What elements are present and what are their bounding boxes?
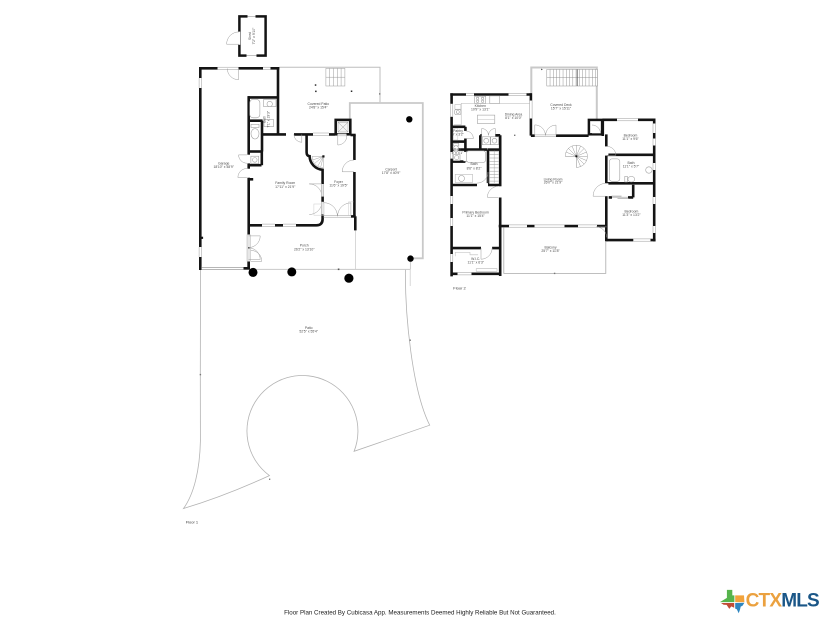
svg-text:9' x 3'2": 9' x 3'2" bbox=[452, 132, 465, 136]
svg-text:8'1" x 10'0": 8'1" x 10'0" bbox=[505, 116, 523, 120]
svg-text:8'6" x 8'2": 8'6" x 8'2" bbox=[467, 166, 483, 170]
svg-text:11'1" x 15'4": 11'1" x 15'4" bbox=[466, 214, 485, 218]
svg-text:25'7" x 11'8": 25'7" x 11'8" bbox=[541, 249, 560, 253]
svg-text:Floor 1: Floor 1 bbox=[186, 520, 199, 525]
svg-text:26'0" x 21'9": 26'0" x 21'9" bbox=[544, 181, 563, 185]
svg-text:5' x 4'1": 5' x 4'1" bbox=[452, 151, 465, 155]
svg-text:15'7" x 15'11": 15'7" x 15'11" bbox=[551, 107, 572, 111]
svg-text:17'8" x 40'9": 17'8" x 40'9" bbox=[382, 171, 401, 175]
svg-text:26'2" x 13'10": 26'2" x 13'10" bbox=[294, 247, 315, 251]
svg-text:11'6" x 19'5": 11'6" x 19'5" bbox=[329, 184, 348, 188]
svg-text:Floor Plan Created By Cubicasa: Floor Plan Created By Cubicasa App. Meas… bbox=[284, 610, 556, 617]
svg-text:52'5" x 55'4": 52'5" x 55'4" bbox=[299, 330, 318, 334]
svg-text:11'1" x 5'7": 11'1" x 5'7" bbox=[623, 164, 640, 168]
svg-text:7'2" x 9'10": 7'2" x 9'10" bbox=[252, 27, 256, 45]
svg-text:11'1" x 9'6": 11'1" x 9'6" bbox=[622, 137, 639, 141]
svg-text:11'1" x 6'3": 11'1" x 6'3" bbox=[467, 260, 484, 264]
svg-text:CTXMLS: CTXMLS bbox=[746, 591, 819, 612]
svg-text:17'11" x 21'9": 17'11" x 21'9" bbox=[275, 185, 296, 189]
svg-text:11'3" x 13'2": 11'3" x 13'2" bbox=[622, 213, 641, 217]
svg-text:24'8" x 15'4": 24'8" x 15'4" bbox=[309, 105, 328, 109]
svg-text:10'9" x 13'1": 10'9" x 13'1" bbox=[471, 107, 490, 111]
svg-text:7'1" x 19'3": 7'1" x 19'3" bbox=[267, 110, 271, 128]
svg-text:Floor 2: Floor 2 bbox=[453, 285, 466, 290]
svg-text:18'10" x 48'9": 18'10" x 48'9" bbox=[213, 165, 234, 169]
